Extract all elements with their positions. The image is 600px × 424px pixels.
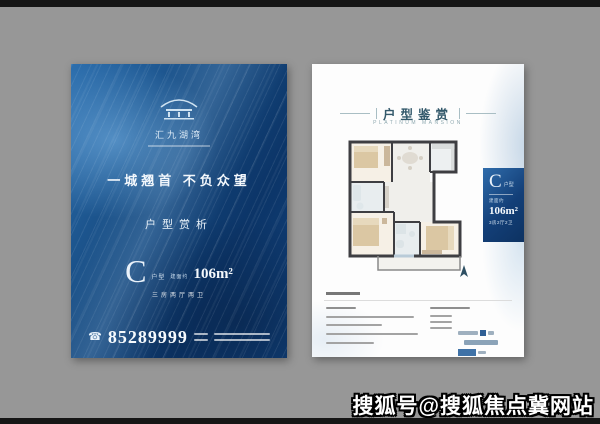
brand-english-line	[148, 145, 210, 147]
header-left-tick	[376, 108, 377, 119]
address-lines	[214, 333, 270, 341]
unit-letter: C	[125, 258, 146, 284]
slogan-text: 一城翘首 不负众望	[71, 170, 287, 189]
developer-logo-row	[458, 349, 486, 356]
dimension-list-heading	[430, 307, 470, 309]
phone-icon: ☎	[88, 332, 102, 343]
fineprint-line	[326, 342, 374, 344]
badge-unit-letter: C	[489, 173, 502, 190]
hotline-row: ☎ 85289999	[71, 328, 287, 346]
badge-unit-type: 户型	[504, 181, 514, 190]
header-subtitle: PLATINUM MANSION	[312, 120, 524, 126]
header-left-line	[340, 113, 370, 114]
badge-area-value: 106m²	[489, 205, 524, 217]
hotline-caption-lines	[194, 333, 208, 341]
bottom-letterbox-bar	[0, 418, 600, 424]
floorplan-poster-page: 户型鉴赏 PLATINUM MANSION	[312, 64, 524, 357]
floorplan-drawing	[338, 134, 478, 287]
dimension-list-line	[430, 315, 452, 317]
brand-name: 汇九湖湾	[71, 128, 287, 141]
header-right-tick	[459, 108, 460, 119]
hotline-number: 85289999	[108, 328, 188, 346]
header-right-line	[466, 113, 496, 114]
fineprint-line	[326, 324, 382, 326]
sohu-watermark: 搜狐号@搜狐焦点冀网站	[353, 390, 594, 420]
developer-logo-row	[464, 340, 498, 345]
dimension-list-line	[430, 321, 452, 323]
section-title: 户型赏析	[71, 216, 287, 232]
advertisement-image: 汇九湖湾 一城翘首 不负众望 户型赏析 C 户型 建面约 106m² 三房两厅两…	[0, 0, 600, 424]
fineprint-line	[326, 333, 418, 335]
badge-divider	[489, 194, 513, 195]
top-letterbox-bar	[0, 0, 600, 7]
north-arrow-icon	[458, 264, 470, 285]
unit-type-label: 户型	[151, 272, 165, 284]
area-note-line	[326, 292, 360, 295]
brand-logo: 汇九湖湾	[71, 98, 287, 147]
developer-logo-row	[458, 330, 494, 336]
unit-area-value: 106m²	[193, 266, 233, 284]
badge-area-note: 建面约	[489, 198, 524, 204]
dimension-list-line	[430, 327, 452, 329]
unit-summary: C 户型 建面约 106m²	[71, 258, 287, 284]
area-note-label: 建面约	[170, 273, 188, 284]
blue-poster-page: 汇九湖湾 一城翘首 不负众望 户型赏析 C 户型 建面约 106m² 三房两厅两…	[71, 64, 287, 358]
badge-rooms-label: 3房2厅2卫	[489, 220, 524, 226]
unit-info-badge: C 户型 建面约 106m² 3房2厅2卫	[483, 168, 524, 242]
unit-rooms-label: 三房两厅两卫	[71, 290, 287, 299]
fineprint-line	[326, 316, 414, 318]
fineprint-heading-line	[326, 307, 356, 309]
pavilion-icon	[156, 107, 202, 124]
divider-rule	[324, 300, 512, 301]
